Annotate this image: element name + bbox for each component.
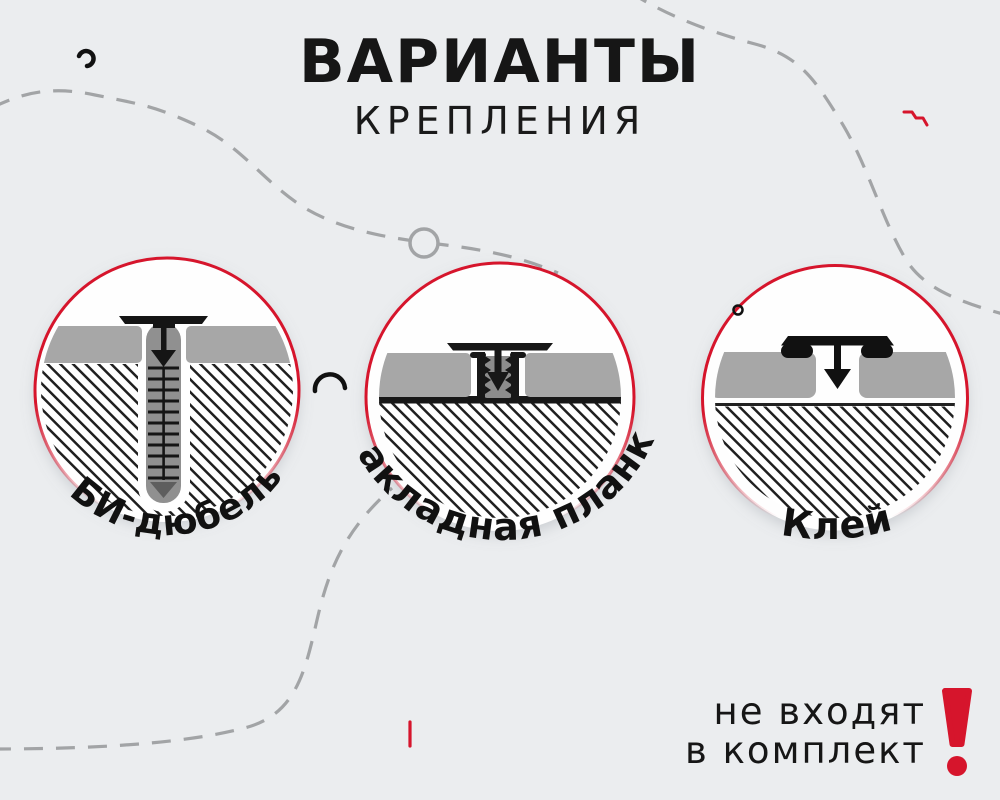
ring-icon <box>410 229 438 257</box>
not-included-note: не входят в комплект <box>685 686 974 778</box>
infographic-canvas: ВАРИАНТЫ КРЕПЛЕНИЯ <box>0 0 1000 800</box>
option-card-glue: Клей <box>703 266 968 549</box>
note-line-2: в комплект <box>685 732 926 771</box>
page-title: ВАРИАНТЫ КРЕПЛЕНИЯ <box>0 32 1000 140</box>
note-line-1: не входят <box>685 693 926 732</box>
option-card-bi-dowel: БИ-дюбель <box>28 258 300 555</box>
title-line-1: ВАРИАНТЫ <box>0 32 1000 92</box>
arc-squiggle-icon <box>315 374 345 391</box>
exclamation-icon <box>940 686 974 778</box>
title-line-2: КРЕПЛЕНИЯ <box>0 102 1000 140</box>
note-text: не входят в комплект <box>685 693 926 771</box>
